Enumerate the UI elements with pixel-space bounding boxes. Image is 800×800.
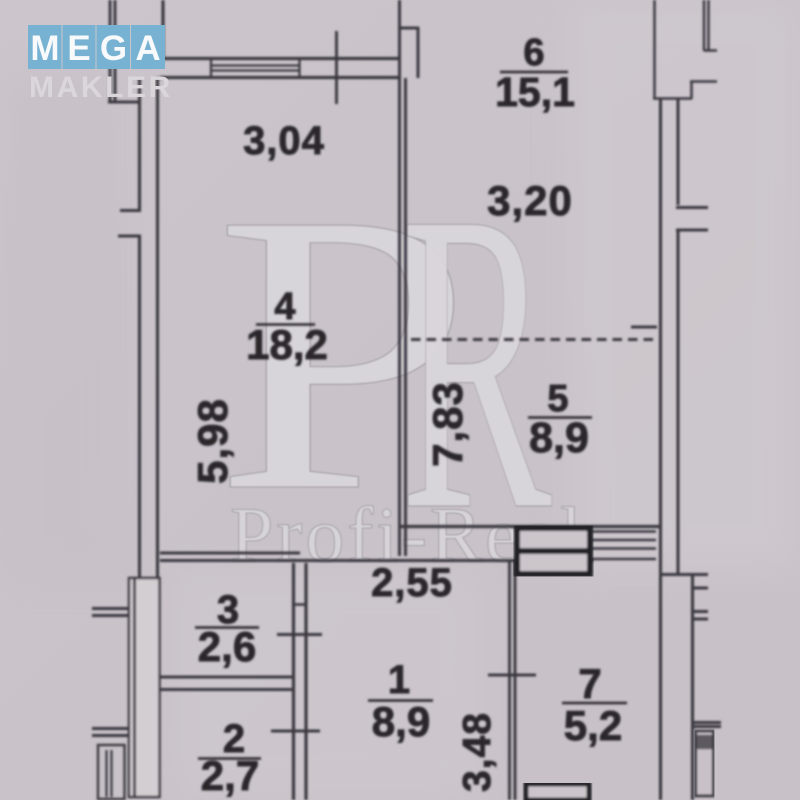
svg-text:8,9: 8,9 [372,698,430,745]
svg-text:18,2: 18,2 [246,321,328,368]
svg-text:MAKLER: MAKLER [29,71,173,104]
svg-text:2,7: 2,7 [201,752,259,799]
svg-text:3,20: 3,20 [487,177,573,224]
svg-text:3,04: 3,04 [243,119,325,163]
svg-text:7: 7 [578,660,601,707]
svg-text:A: A [135,29,160,68]
svg-text:2,55: 2,55 [371,561,453,605]
svg-text:6: 6 [523,32,544,74]
svg-text:2,6: 2,6 [198,623,256,670]
svg-text:1: 1 [388,658,410,702]
svg-text:M: M [30,29,59,68]
svg-text:5,2: 5,2 [564,702,622,749]
svg-text:E: E [67,29,90,68]
svg-text:7,83: 7,83 [424,381,471,467]
svg-text:5,98: 5,98 [189,398,236,484]
svg-text:15,1: 15,1 [495,69,575,115]
svg-text:G: G [100,29,127,68]
svg-text:8,9: 8,9 [529,414,589,462]
svg-text:3,48: 3,48 [456,712,499,792]
